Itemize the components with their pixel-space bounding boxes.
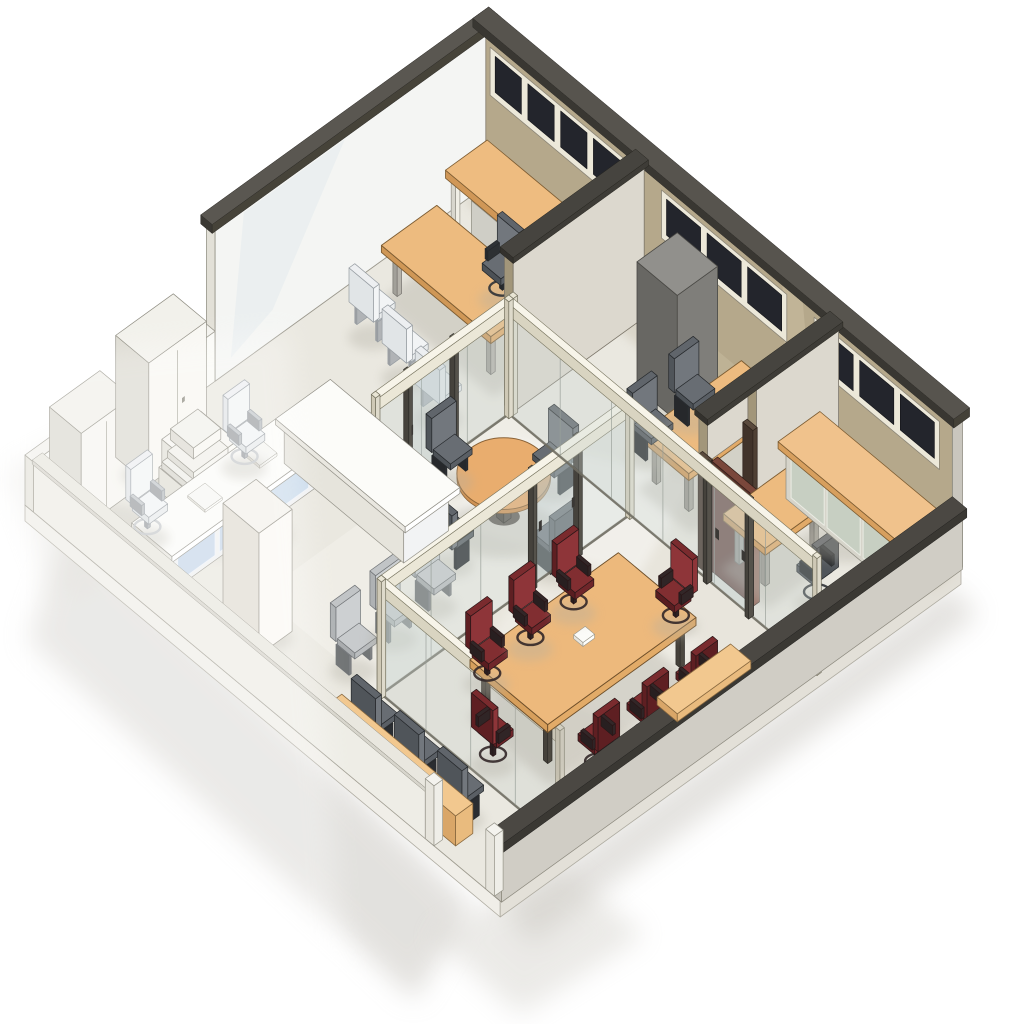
scene-root	[0, 7, 978, 1024]
sketch-haze-left	[0, 330, 350, 1024]
nw-wall-end-cap	[206, 222, 215, 331]
isometric-office-cutaway	[0, 0, 1024, 1024]
entry-post	[486, 823, 503, 896]
entry-post	[425, 772, 442, 845]
office-floorplan-rendering	[0, 0, 1024, 1024]
